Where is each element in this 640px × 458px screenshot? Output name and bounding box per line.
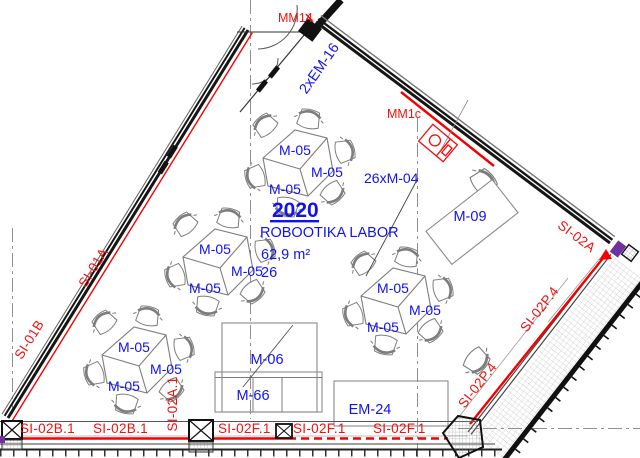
table-label: M-05 bbox=[377, 280, 409, 296]
chairs-count-label: 26xM-04 bbox=[364, 170, 419, 186]
room-area: 62,9 m² bbox=[261, 247, 310, 263]
table-label: M-05 bbox=[269, 181, 301, 197]
room-name: ROBOOTIKA LABOR bbox=[260, 225, 399, 241]
desk-m09-label: M-09 bbox=[453, 209, 486, 225]
table-label: M-05 bbox=[118, 339, 150, 355]
table-label: M-05 bbox=[150, 361, 182, 377]
room-number: 2020 bbox=[272, 199, 319, 222]
column-small bbox=[276, 424, 292, 438]
marker-mm14-label: MM14 bbox=[278, 11, 313, 25]
column-left bbox=[0, 421, 22, 450]
wall-label-si02b1: SI-02B.1 bbox=[93, 421, 148, 436]
table-label: M-05 bbox=[409, 302, 441, 318]
table-label: M-05 bbox=[189, 280, 221, 296]
cabinet-m66-label: M-66 bbox=[236, 388, 269, 404]
cabinet-m06-label: M-06 bbox=[250, 352, 283, 368]
table-label: M-05 bbox=[367, 319, 399, 335]
room-capacity: 26 bbox=[261, 265, 277, 281]
wall-label-si02b1: SI-02B.1 bbox=[20, 421, 75, 436]
table-label: M-05 bbox=[231, 263, 263, 279]
table-label: M-05 bbox=[279, 142, 311, 158]
floor-plan-svg: MM14 MM1c 2xEM-16 26xM-04 M-09 M-06 M-66… bbox=[0, 0, 640, 458]
wall-label-si02f1: SI-02F.1 bbox=[218, 421, 271, 436]
floor-plan-page: MM14 MM1c 2xEM-16 26xM-04 M-09 M-06 M-66… bbox=[0, 0, 640, 458]
column-mid bbox=[189, 420, 213, 452]
table-label: M-05 bbox=[199, 241, 231, 257]
table-label: M-05 bbox=[311, 164, 343, 180]
wall-label-si02a1: SI-02A.1 bbox=[165, 377, 180, 432]
table-label: M-05 bbox=[108, 378, 140, 394]
marker-mm1c-label: MM1c bbox=[387, 107, 421, 121]
wall-label-si02f1: SI-02F.1 bbox=[293, 421, 346, 436]
wall-label-si02f1: SI-02F.1 bbox=[373, 421, 426, 436]
equipment-em24-label: EM-24 bbox=[349, 402, 392, 418]
